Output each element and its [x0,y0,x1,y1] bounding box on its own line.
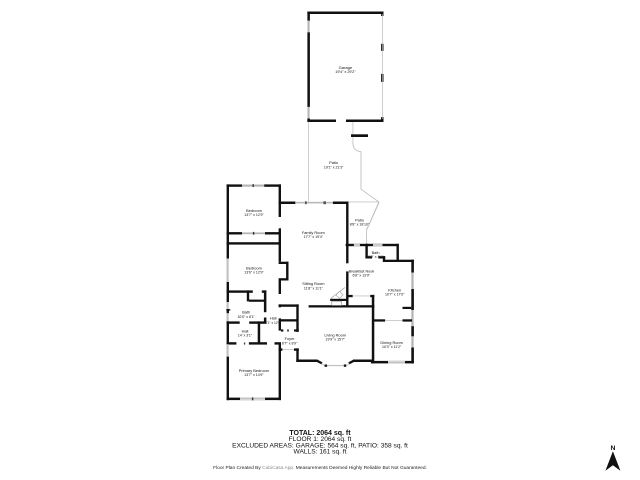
svg-text:8'0" x 4'6": 8'0" x 4'6" [368,255,384,259]
svg-text:19'4" x 29'2": 19'4" x 29'2" [335,70,356,74]
svg-text:10'3" x 11'2": 10'3" x 11'2" [382,345,402,349]
svg-text:6'8" x 13'9": 6'8" x 13'9" [352,274,370,278]
svg-text:11'8" x 11'1": 11'8" x 11'1" [304,286,324,290]
svg-text:13'7" x 12'9": 13'7" x 12'9" [244,213,264,217]
svg-text:19'1" x 21'3": 19'1" x 21'3" [324,165,344,169]
svg-text:17'7" x 19'4": 17'7" x 19'4" [304,235,324,239]
svg-text:8'8" x 18'10": 8'8" x 18'10" [350,222,370,226]
svg-text:10'7" x 17'0": 10'7" x 17'0" [385,293,405,297]
svg-text:10'0" x 8'1": 10'0" x 8'1" [237,315,255,319]
svg-text:N: N [610,445,615,452]
svg-text:13'7" x 14'9": 13'7" x 14'9" [244,373,264,377]
svg-text:Floor Plan Created By CubiCasa: Floor Plan Created By CubiCasa App. Meas… [213,465,427,471]
svg-text:13'6" x 12'9": 13'6" x 12'9" [244,271,264,275]
svg-text:14' x 3'1": 14' x 3'1" [238,334,253,338]
svg-text:19'9" x 15'7": 19'9" x 15'7" [325,338,345,342]
svg-text:WALLS: 161 sq. ft: WALLS: 161 sq. ft [294,449,347,456]
svg-text:6'7" x 8'9": 6'7" x 8'9" [282,341,298,345]
svg-text:4'1" x 12'6": 4'1" x 12'6" [265,321,282,325]
